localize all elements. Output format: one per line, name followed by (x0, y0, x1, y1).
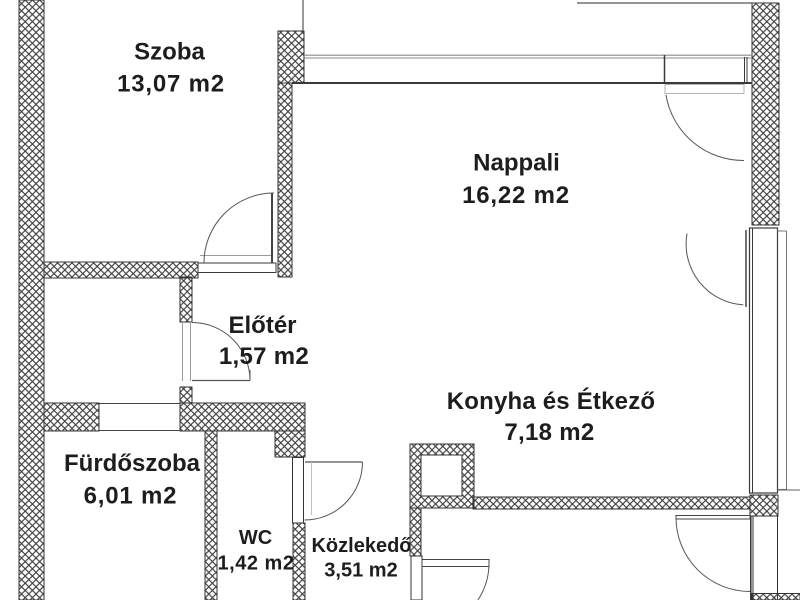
svg-text:WC: WC (239, 527, 272, 549)
svg-text:16,22 m2: 16,22 m2 (462, 182, 570, 209)
svg-text:1,42 m2: 1,42 m2 (218, 553, 295, 575)
svg-text:13,07 m2: 13,07 m2 (117, 71, 225, 98)
svg-text:Nappali: Nappali (473, 150, 560, 177)
svg-text:3,51 m2: 3,51 m2 (324, 560, 397, 582)
svg-text:Közlekedő: Közlekedő (311, 535, 411, 557)
svg-text:Fürdőszoba: Fürdőszoba (64, 450, 201, 477)
svg-text:6,01 m2: 6,01 m2 (84, 483, 178, 510)
svg-text:Szoba: Szoba (134, 39, 205, 66)
svg-text:7,18 m2: 7,18 m2 (504, 419, 594, 446)
svg-text:Előtér: Előtér (228, 312, 296, 339)
svg-text:1,57 m2: 1,57 m2 (219, 343, 309, 370)
svg-text:Konyha és Étkező: Konyha és Étkező (447, 387, 656, 415)
